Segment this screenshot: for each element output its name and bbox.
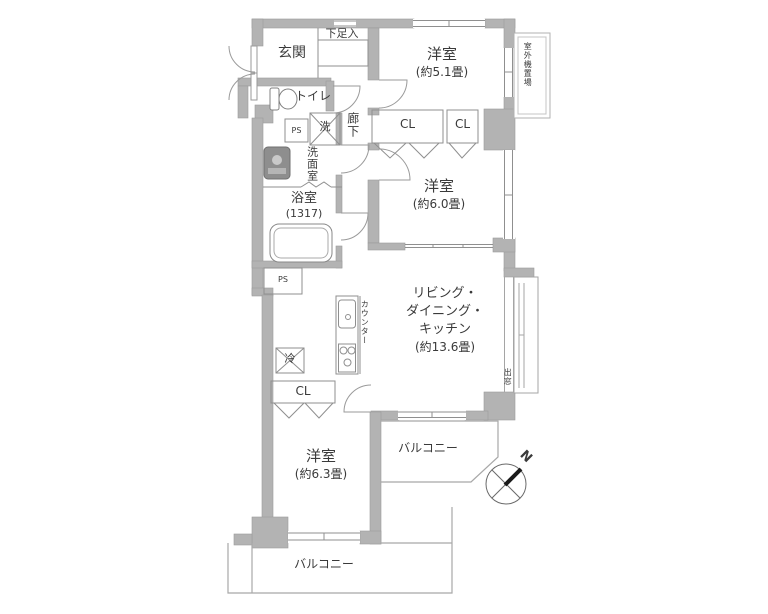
washbasin-icon [264,147,290,179]
bathtub-icon [270,224,332,262]
outdoor-unit-area [514,33,550,118]
floorplan-page: 玄関 下足入 洋室 (約5.1畳) 室外機置場 トイレ PS 洗 廊下 洗面室 … [0,0,768,614]
stove-icon [339,344,356,372]
windows [288,19,515,543]
kitchen-sink-icon [339,300,356,328]
kitchen-counter [336,296,360,374]
floorplan-drawing [0,0,768,614]
toilet-icon [270,88,297,110]
bay-window-outline [505,277,539,393]
compass-icon [486,464,526,504]
